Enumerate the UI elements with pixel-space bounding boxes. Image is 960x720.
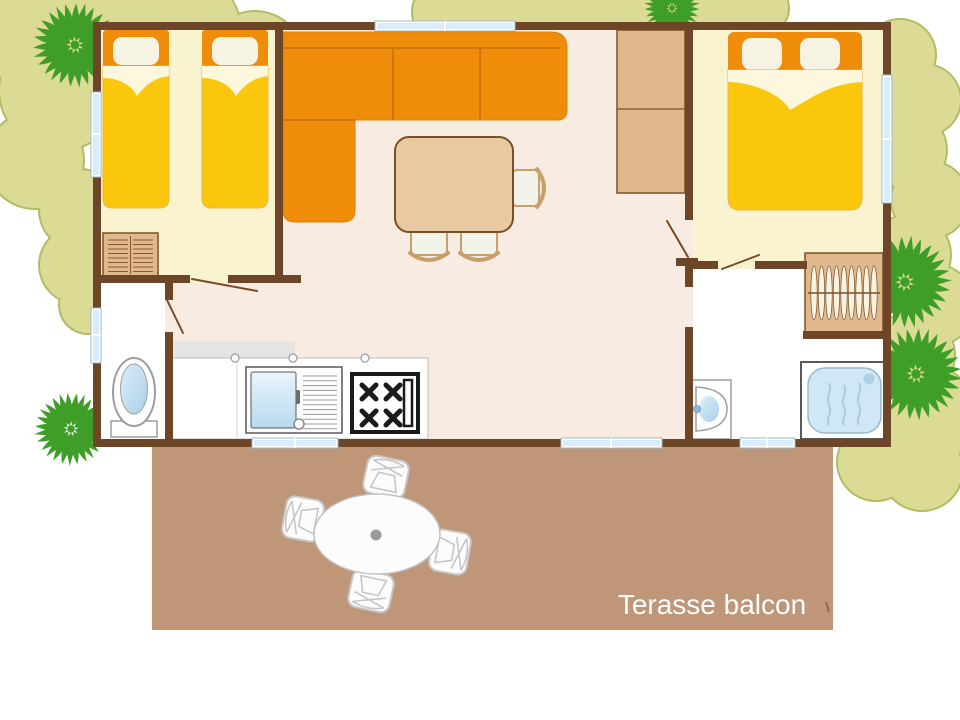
floor-plan-canvas: Terasse balcon [0,0,960,720]
wall-left [93,22,101,447]
window-icon [375,21,515,31]
wall-wardrobe-bottom [803,331,891,339]
window-icon [252,438,338,448]
garden-chair-icon [347,568,396,614]
mobile-home-floor-plan: Terasse balcon [0,0,960,720]
terrace-table-icon [314,494,440,574]
wall-bedroom-right [685,266,693,287]
single-bed-icon [202,30,268,208]
window-icon [740,438,795,448]
bush-blob [882,430,960,510]
dining-chair-icon [512,169,544,207]
washbasin-icon [691,380,731,439]
wall-bedroom-left [275,30,283,283]
terrace: Terasse balcon [152,447,833,630]
counter-knob [361,354,369,362]
wall-wc [165,283,173,300]
window-icon [882,75,892,203]
window-icon [561,438,662,448]
toilet-icon [111,358,157,437]
window-icon [91,92,101,177]
tall-cabinet-icon [617,30,685,193]
gas-hob-icon [352,374,418,432]
wall-bathroom [685,327,693,439]
dresser-icon [103,233,158,277]
wall-bedroom-left-bottom [101,275,190,283]
wall-bedroom-right-bottom [693,261,718,269]
wall-bedroom-right [685,30,693,220]
double-bed-icon [728,32,862,210]
terrace-label: Terasse balcon [618,589,806,620]
dining-table-icon [395,137,513,232]
shower-icon [801,362,888,439]
window-icon [91,308,101,363]
single-bed-icon [103,30,169,208]
wall-bedroom-left-bottom [228,275,301,283]
garden-chair-icon [362,454,411,500]
wardrobe-icon [805,253,883,333]
counter-knob [289,354,297,362]
wall-bedroom-right-bottom [755,261,807,269]
kitchen-sink-icon [246,367,342,433]
counter-knob [231,354,239,362]
wall-wc [165,332,173,439]
